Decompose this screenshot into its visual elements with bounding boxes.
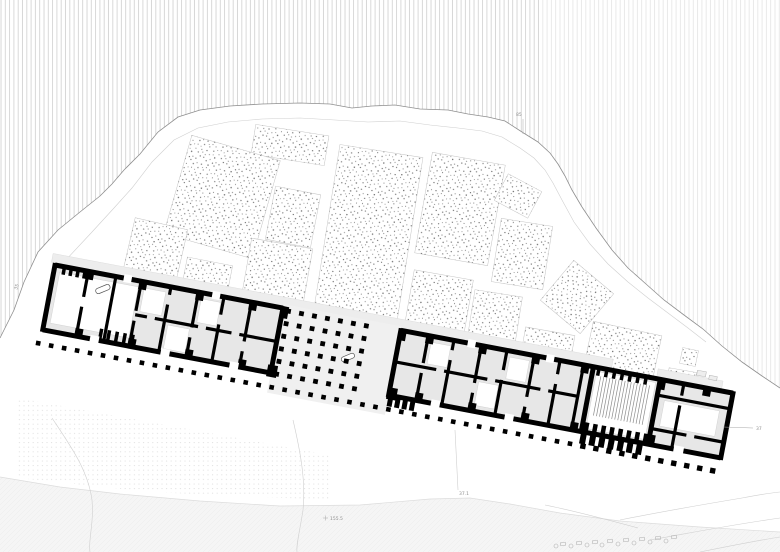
city-block <box>415 152 506 265</box>
site-plan-drawing: 8535155.537.137 <box>0 0 780 552</box>
elevation-label: 155.5 <box>330 516 343 522</box>
hall-room <box>140 288 166 316</box>
hall-room <box>197 299 221 326</box>
hall-room <box>474 382 498 409</box>
hall-room <box>163 325 189 353</box>
paved-dot-field <box>18 398 330 500</box>
city-block <box>680 348 699 367</box>
elevation-label: 85 <box>516 112 522 118</box>
elevation-label: 37.1 <box>459 491 469 497</box>
city-block <box>265 186 320 248</box>
city-block <box>491 218 552 289</box>
city-block <box>313 144 423 327</box>
elevation-label: 37 <box>756 426 762 432</box>
site-plan-page: 8535155.537.137 <box>0 0 780 552</box>
hall-room <box>427 342 451 367</box>
hall-room <box>506 357 530 382</box>
city-block <box>540 260 613 333</box>
